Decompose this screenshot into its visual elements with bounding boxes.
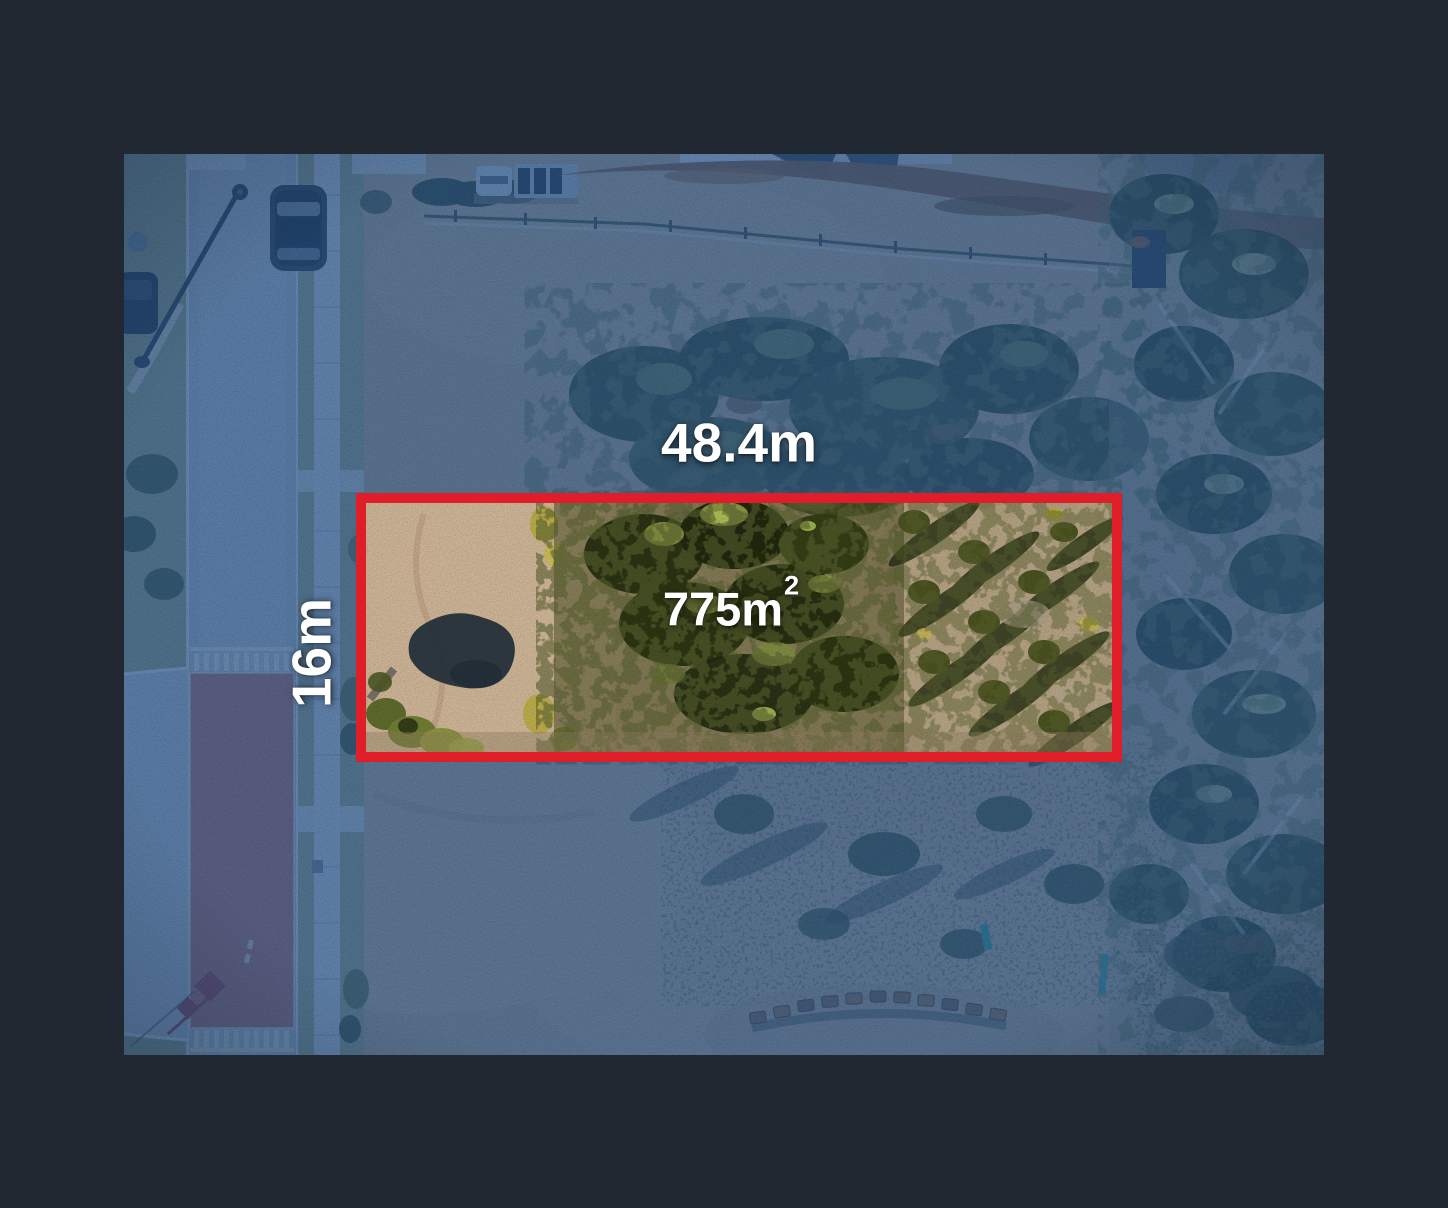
- aerial-photo: 48.4m 16m 775m2: [124, 154, 1324, 1055]
- frontage-measurement-label: 48.4m: [661, 416, 817, 471]
- depth-measurement-label: 16m: [285, 598, 340, 708]
- area-measurement-label: 775m2: [663, 586, 799, 633]
- listing-image-frame: 48.4m 16m 775m2: [0, 0, 1448, 1208]
- area-value: 775m: [663, 583, 783, 636]
- area-exponent: 2: [784, 570, 799, 601]
